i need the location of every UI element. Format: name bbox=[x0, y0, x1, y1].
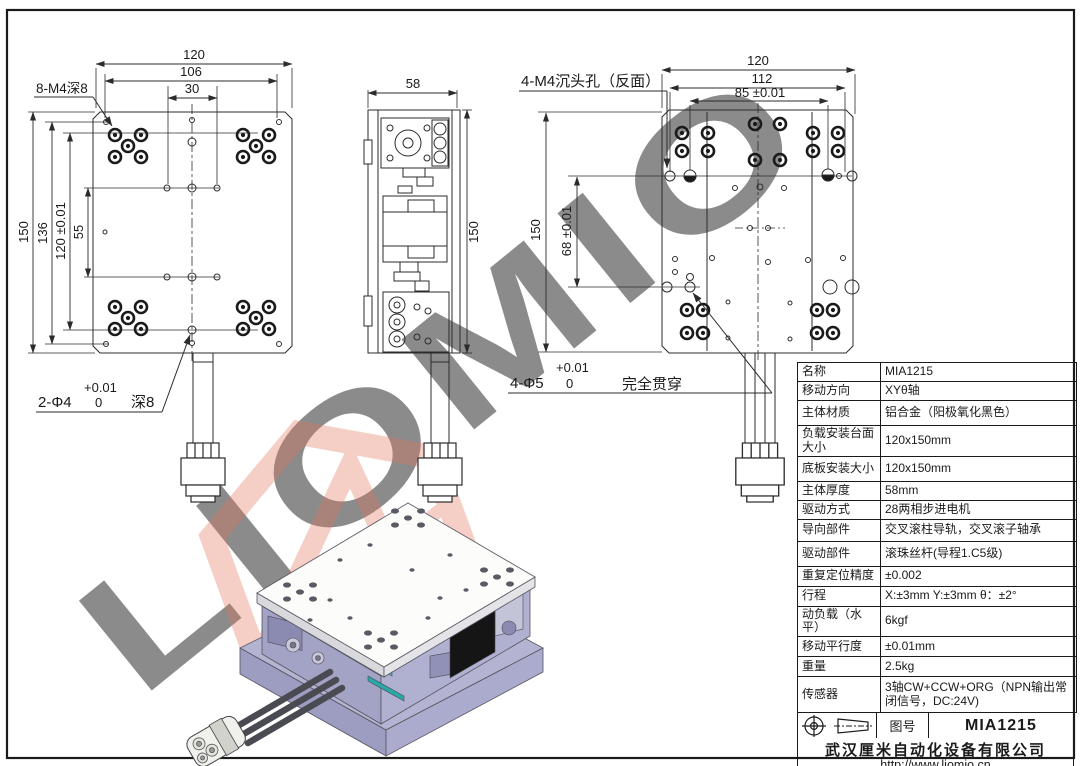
front-cable bbox=[181, 353, 225, 502]
svg-text:2-Φ4: 2-Φ4 bbox=[38, 394, 72, 411]
spec-value: 6kgf bbox=[881, 606, 1077, 637]
spec-label: 驱动方式 bbox=[798, 500, 881, 519]
company-website: http://www.liomio.cn bbox=[880, 759, 990, 766]
spec-value: 120x150mm bbox=[881, 426, 1077, 457]
rear-dim-120: 120 bbox=[747, 53, 769, 68]
first-angle-projection-icon bbox=[801, 715, 873, 737]
spec-label: 重复定位精度 bbox=[798, 566, 881, 586]
table-row: 负载安装台面大小120x150mm bbox=[798, 426, 1077, 457]
table-row: 动负载（水平）6kgf bbox=[798, 606, 1077, 637]
table-row: 驱动方式28两相步进电机 bbox=[798, 500, 1077, 519]
svg-text:完全贯穿: 完全贯穿 bbox=[622, 375, 682, 393]
rear-cable bbox=[736, 353, 784, 502]
projection-symbols bbox=[798, 713, 877, 738]
table-row: 导向部件交叉滚柱导轨，交叉滚子轴承 bbox=[798, 519, 1077, 541]
spec-value: MIA1215 bbox=[881, 363, 1077, 382]
front-dim-120: 120 bbox=[183, 47, 205, 62]
table-row: 重量2.5kg bbox=[798, 657, 1077, 677]
svg-text:+0.01: +0.01 bbox=[556, 360, 589, 375]
front-dim-150: 150 bbox=[16, 221, 31, 243]
side-motor-block bbox=[381, 118, 449, 168]
spec-table: 名称MIA1215 移动方向XYθ轴 主体材质铝合金（阳极氧化黑色） 负载安装台… bbox=[797, 362, 1074, 766]
spec-value: 铝合金（阳极氧化黑色） bbox=[881, 401, 1077, 426]
side-mid-block bbox=[383, 196, 447, 262]
spec-label: 行程 bbox=[798, 586, 881, 606]
spec-label: 主体材质 bbox=[798, 401, 881, 426]
drawing-sheet: LIOMIO bbox=[0, 0, 1081, 766]
rear-dim-68: 68 ±0.01 bbox=[559, 206, 574, 257]
spec-label: 移动平行度 bbox=[798, 637, 881, 657]
svg-text:4-Φ5: 4-Φ5 bbox=[510, 375, 544, 392]
table-row: 移动方向XYθ轴 bbox=[798, 382, 1077, 401]
spec-label: 主体厚度 bbox=[798, 481, 881, 500]
title-block-row: 图号 MIA1215 bbox=[797, 713, 1074, 738]
table-row: 行程X:±3mm Y:±3mm θ：±2° bbox=[798, 586, 1077, 606]
svg-text:0: 0 bbox=[95, 395, 102, 410]
spec-label: 移动方向 bbox=[798, 382, 881, 401]
svg-text:8-M4深8: 8-M4深8 bbox=[36, 81, 88, 96]
rear-dim-85: 85 ±0.01 bbox=[735, 85, 786, 100]
spec-label: 传感器 bbox=[798, 677, 881, 713]
table-row: 重复定位精度±0.002 bbox=[798, 566, 1077, 586]
spec-value: 3轴CW+CCW+ORG（NPN输出常闭信号，DC:24V) bbox=[881, 677, 1077, 713]
table-row: 驱动部件滚珠丝杆(导程1.C5级) bbox=[798, 541, 1077, 566]
drawing-no-value: MIA1215 bbox=[929, 713, 1073, 738]
table-row: 移动平行度±0.01mm bbox=[798, 637, 1077, 657]
rear-dim-112: 112 bbox=[752, 71, 773, 86]
side-dim-58: 58 bbox=[406, 76, 420, 91]
front-dim-106: 106 bbox=[180, 64, 202, 79]
front-note-bottom: 2-Φ4 +0.01 0 深8 bbox=[36, 335, 190, 412]
company-name: 武汉厘米自动化设备有限公司 bbox=[825, 743, 1046, 760]
company-block: 武汉厘米自动化设备有限公司 http://www.liomio.cn bbox=[797, 738, 1074, 766]
spec-value: ±0.01mm bbox=[881, 637, 1077, 657]
spec-value: X:±3mm Y:±3mm θ：±2° bbox=[881, 586, 1077, 606]
svg-text:+0.01: +0.01 bbox=[84, 380, 117, 395]
spec-value: ±0.002 bbox=[881, 566, 1077, 586]
spec-label: 动负载（水平） bbox=[798, 606, 881, 637]
table-row: 名称MIA1215 bbox=[798, 363, 1077, 382]
spec-label: 驱动部件 bbox=[798, 541, 881, 566]
table-row: 主体材质铝合金（阳极氧化黑色） bbox=[798, 401, 1077, 426]
side-dim-150: 150 bbox=[466, 221, 481, 243]
svg-text:深8: 深8 bbox=[131, 394, 154, 411]
spec-value: 2.5kg bbox=[881, 657, 1077, 677]
rear-dim-150: 150 bbox=[528, 219, 543, 241]
front-note-top: 8-M4深8 bbox=[34, 81, 112, 126]
table-row: 底板安装大小120x150mm bbox=[798, 456, 1077, 481]
table-row: 传感器3轴CW+CCW+ORG（NPN输出常闭信号，DC:24V) bbox=[798, 677, 1077, 713]
front-dim-30: 30 bbox=[185, 81, 199, 96]
front-dim-120tol: 120 ±0.01 bbox=[53, 202, 68, 260]
spec-label: 底板安装大小 bbox=[798, 456, 881, 481]
front-dim-136: 136 bbox=[35, 222, 50, 244]
spec-label: 名称 bbox=[798, 363, 881, 382]
spec-value: 58mm bbox=[881, 481, 1077, 500]
spec-value: XYθ轴 bbox=[881, 382, 1077, 401]
drawing-no-label: 图号 bbox=[877, 713, 929, 738]
spec-value: 滚珠丝杆(导程1.C5级) bbox=[881, 541, 1077, 566]
spec-label: 重量 bbox=[798, 657, 881, 677]
front-dimensions bbox=[33, 64, 292, 353]
svg-text:0: 0 bbox=[566, 376, 573, 391]
spec-value: 120x150mm bbox=[881, 456, 1077, 481]
table-row: 主体厚度58mm bbox=[798, 481, 1077, 500]
svg-text:4-M4沉头孔（反面）: 4-M4沉头孔（反面） bbox=[521, 73, 660, 90]
front-dim-55: 55 bbox=[71, 225, 86, 239]
spec-label: 负载安装台面大小 bbox=[798, 426, 881, 457]
spec-label: 导向部件 bbox=[798, 519, 881, 541]
spec-value: 交叉滚柱导轨，交叉滚子轴承 bbox=[881, 519, 1077, 541]
spec-value: 28两相步进电机 bbox=[881, 500, 1077, 519]
